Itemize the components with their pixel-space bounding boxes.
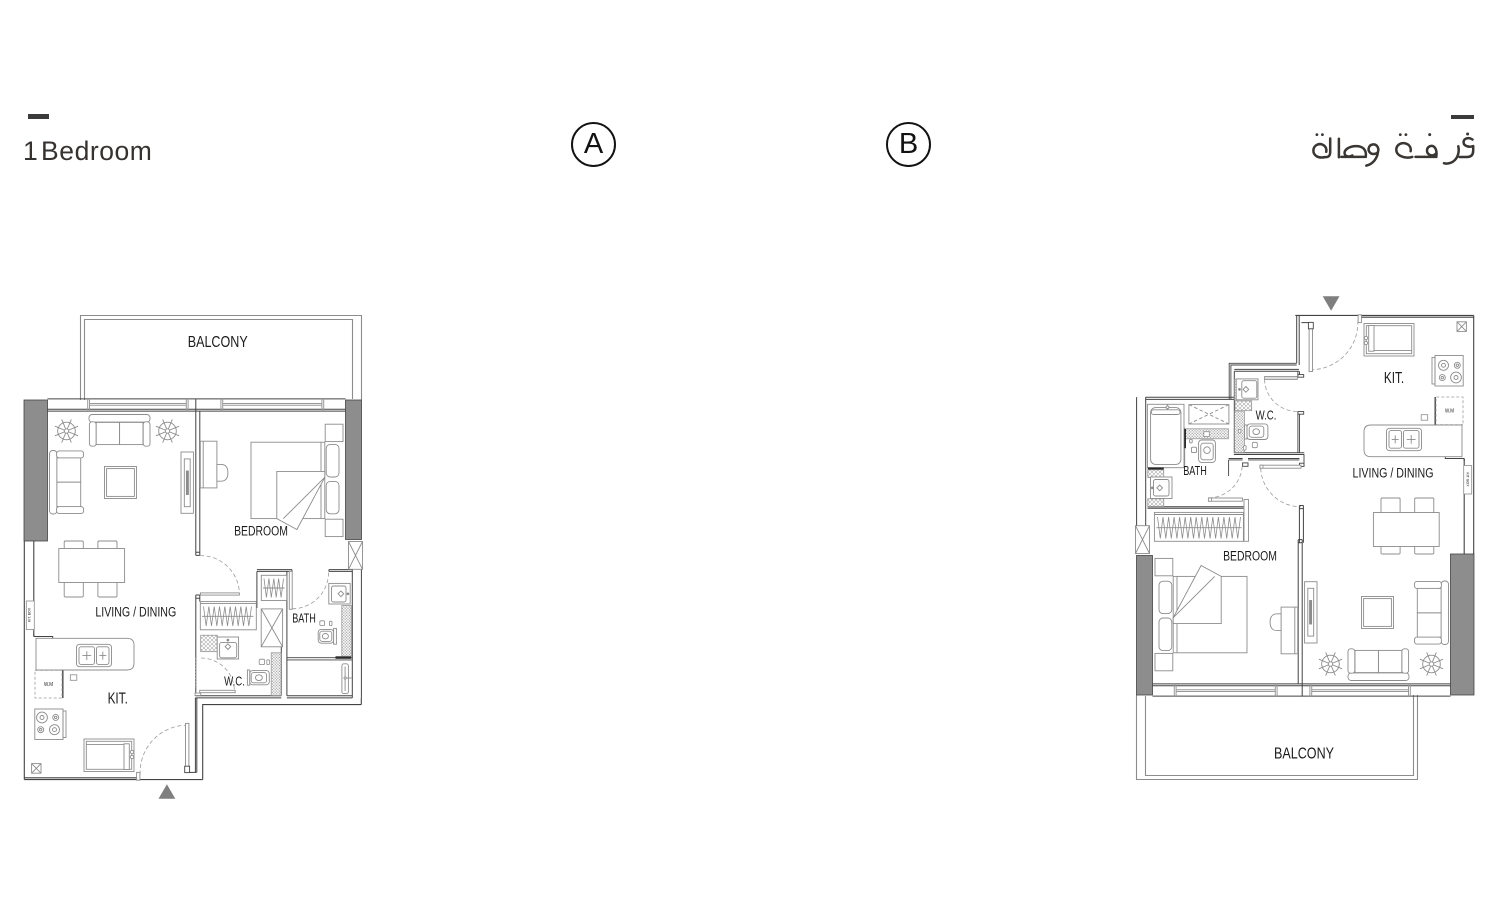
svg-text:BALCONY: BALCONY — [1274, 745, 1334, 763]
svg-text:BATH: BATH — [292, 612, 316, 626]
svg-text:BEDROOM: BEDROOM — [234, 523, 288, 539]
svg-text:KIT.: KIT. — [1384, 370, 1404, 387]
svg-text:LIVING / DINING: LIVING / DINING — [95, 604, 176, 620]
svg-text:BEDROOM: BEDROOM — [1223, 548, 1277, 564]
svg-text:W.C.: W.C. — [224, 675, 245, 689]
svg-text:KIT. BOX: KIT. BOX — [1466, 473, 1470, 488]
svg-text:KIT.: KIT. — [108, 690, 128, 707]
svg-text:KIT. BOX: KIT. BOX — [28, 607, 32, 622]
svg-text:BATH: BATH — [1183, 464, 1207, 478]
svg-text:BALCONY: BALCONY — [188, 334, 248, 352]
svg-text:LIVING / DINING: LIVING / DINING — [1353, 465, 1434, 481]
svg-text:W.M: W.M — [1445, 408, 1454, 414]
svg-text:W.C.: W.C. — [1256, 409, 1277, 423]
svg-text:W.M: W.M — [44, 682, 53, 688]
